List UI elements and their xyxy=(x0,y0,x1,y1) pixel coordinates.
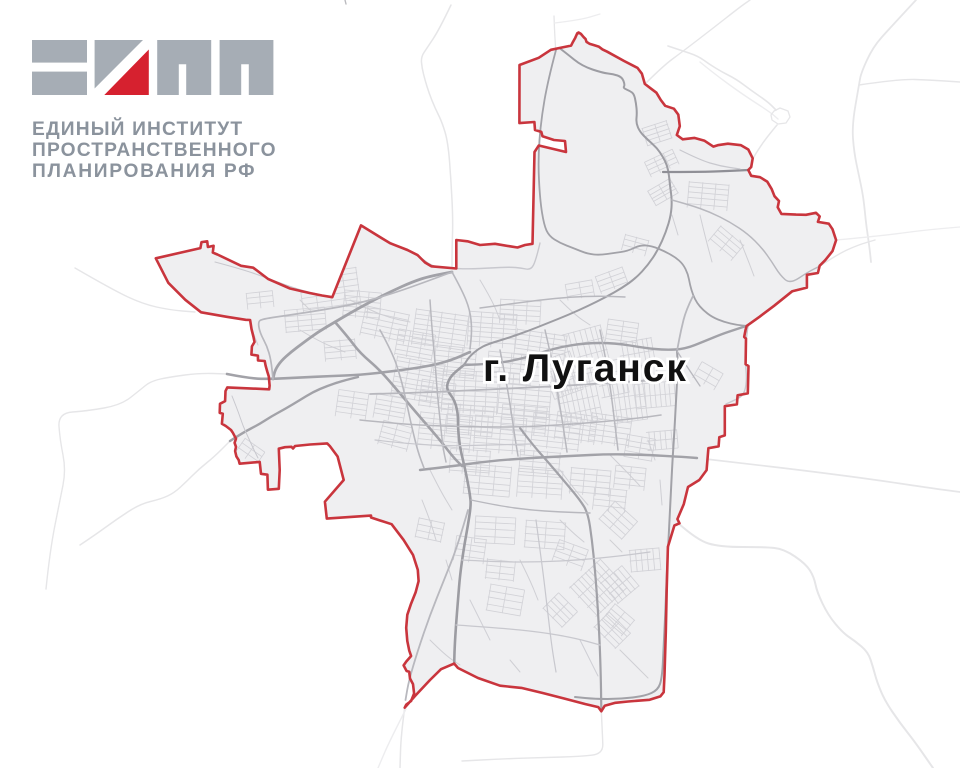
svg-text:ПЛАНИРОВАНИЯ РФ: ПЛАНИРОВАНИЯ РФ xyxy=(32,161,256,182)
svg-text:ЕДИНЫЙ ИНСТИТУТ: ЕДИНЫЙ ИНСТИТУТ xyxy=(32,118,243,140)
svg-text:ПРОСТРАНСТВЕННОГО: ПРОСТРАНСТВЕННОГО xyxy=(32,140,277,161)
svg-text:г. Луганск: г. Луганск xyxy=(483,347,688,390)
